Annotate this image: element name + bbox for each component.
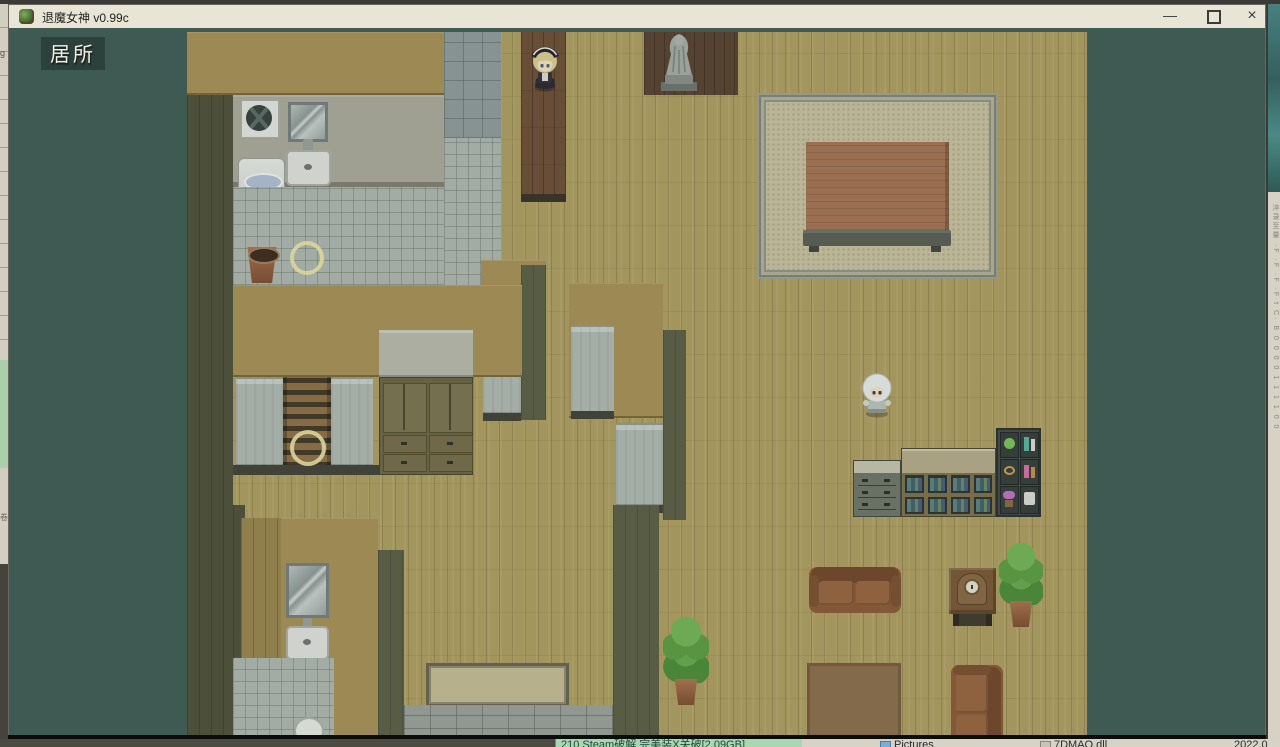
left-wall-shadow <box>187 95 233 739</box>
map-viewport <box>187 32 1087 739</box>
player-sprite <box>859 373 895 418</box>
low-table <box>806 142 949 237</box>
plant-leaves <box>663 617 709 683</box>
dresser <box>853 460 901 517</box>
explorer-strip: Pictures 7DMAO.dll 2022.0 <box>802 739 1280 747</box>
date-fragment: 2022.0 <box>1234 739 1268 747</box>
left-edge-char-mid: 卷 <box>0 512 8 523</box>
close-button[interactable]: × <box>1237 5 1266 27</box>
potted-plant-right <box>999 543 1043 629</box>
left-edge-dark <box>0 564 8 747</box>
entry-rug <box>426 663 569 707</box>
file-list-rows <box>0 24 8 364</box>
bedroom-curtain-left <box>236 377 283 467</box>
wardrobe-top <box>379 330 473 377</box>
file-item[interactable]: 7DMAO.dll <box>1040 739 1107 747</box>
bedroom-curtain-right <box>331 377 373 467</box>
display-cabinet <box>996 428 1041 517</box>
laundry-mirror <box>288 102 328 142</box>
bathroom-right-shadow <box>378 550 404 739</box>
minimize-button[interactable]: — <box>1155 5 1185 27</box>
folder-item[interactable]: Pictures <box>880 739 934 747</box>
archive-item-label: 210 Steam破解 完美装X关破[2.09GB] <box>556 739 803 747</box>
game-window: 退魔女神 v0.99c — × <box>8 4 1266 739</box>
ventilation-fan <box>241 100 279 138</box>
stone-pavement <box>404 705 613 739</box>
center-wall-b-shadow <box>663 330 686 520</box>
folder-icon <box>880 741 891 747</box>
window-title: 退魔女神 v0.99c <box>42 9 129 26</box>
maximize-button[interactable] <box>1199 5 1229 27</box>
background-window-right-sliver: 淬录至量 ·F ·F ·F ·F t C· B 0 0 0 0 1 1 1 1 … <box>1268 4 1280 747</box>
file-item-label: 7DMAO.dll <box>1054 739 1107 747</box>
bathroom-wall-right <box>334 518 378 739</box>
window-titlebar[interactable]: 退魔女神 v0.99c — × <box>9 5 1265 29</box>
folder-item-label: Pictures <box>894 739 934 747</box>
clock-table <box>949 568 996 630</box>
npc-maid-sprite <box>528 45 562 93</box>
plant-leaves <box>999 543 1043 605</box>
event-ring-bedroom <box>290 430 326 466</box>
background-window-left-sliver: g 卷 <box>0 4 8 747</box>
center-wall-a-shadow <box>521 265 546 420</box>
background-bottom-bar: 210 Steam破解 完美装X关破[2.09GB] Pictures 7DMA… <box>0 739 1280 747</box>
plant-pot <box>1007 601 1035 627</box>
wardrobe <box>379 377 473 475</box>
laundry-sink <box>286 150 331 186</box>
statue-sprite <box>655 32 703 94</box>
window-curtain-b1 <box>571 325 614 417</box>
map-name-label: 居所 <box>41 37 105 70</box>
bedroom-wall <box>233 285 522 377</box>
maximize-icon <box>1207 10 1221 24</box>
event-ring-laundry <box>290 241 324 275</box>
bathroom-mirror <box>286 563 329 618</box>
right-edge-fragments: 淬录至量 ·F ·F ·F ·F t C· B 0 0 0 0 1 1 1 1 … <box>1270 204 1280 724</box>
curtain-b1-base <box>571 411 614 419</box>
potted-plant-hall <box>663 617 709 709</box>
app-icon <box>19 9 34 24</box>
window-curtain-b2 <box>616 423 663 507</box>
bedroom-baseboard <box>233 465 379 475</box>
archive-item-highlight[interactable]: 210 Steam破解 完美装X关破[2.09GB] <box>555 739 803 747</box>
brown-rug <box>807 663 901 739</box>
bathroom-sink <box>286 626 329 660</box>
corridor-large-tiles <box>444 32 501 138</box>
sofa-vertical <box>951 665 1003 739</box>
game-canvas[interactable]: 居所 <box>9 28 1265 739</box>
dll-file-icon <box>1040 741 1051 747</box>
bench-leg-right <box>931 246 941 252</box>
sofa <box>809 567 901 613</box>
left-edge-char-top: g <box>0 48 5 58</box>
plant-pot <box>672 679 700 705</box>
laundry-wall-top <box>187 32 444 95</box>
bench-leg-left <box>809 246 819 252</box>
bookshelf <box>901 448 996 517</box>
center-bottom-wall-shadow <box>613 505 659 739</box>
wallpaper-fragment <box>1268 4 1280 192</box>
mantel-clock <box>957 573 987 605</box>
wooden-bucket <box>244 241 280 283</box>
fan-blades-icon <box>246 105 272 131</box>
curtain-a-base <box>483 413 521 421</box>
selected-row-highlight <box>0 360 8 468</box>
table-bench <box>803 230 951 246</box>
